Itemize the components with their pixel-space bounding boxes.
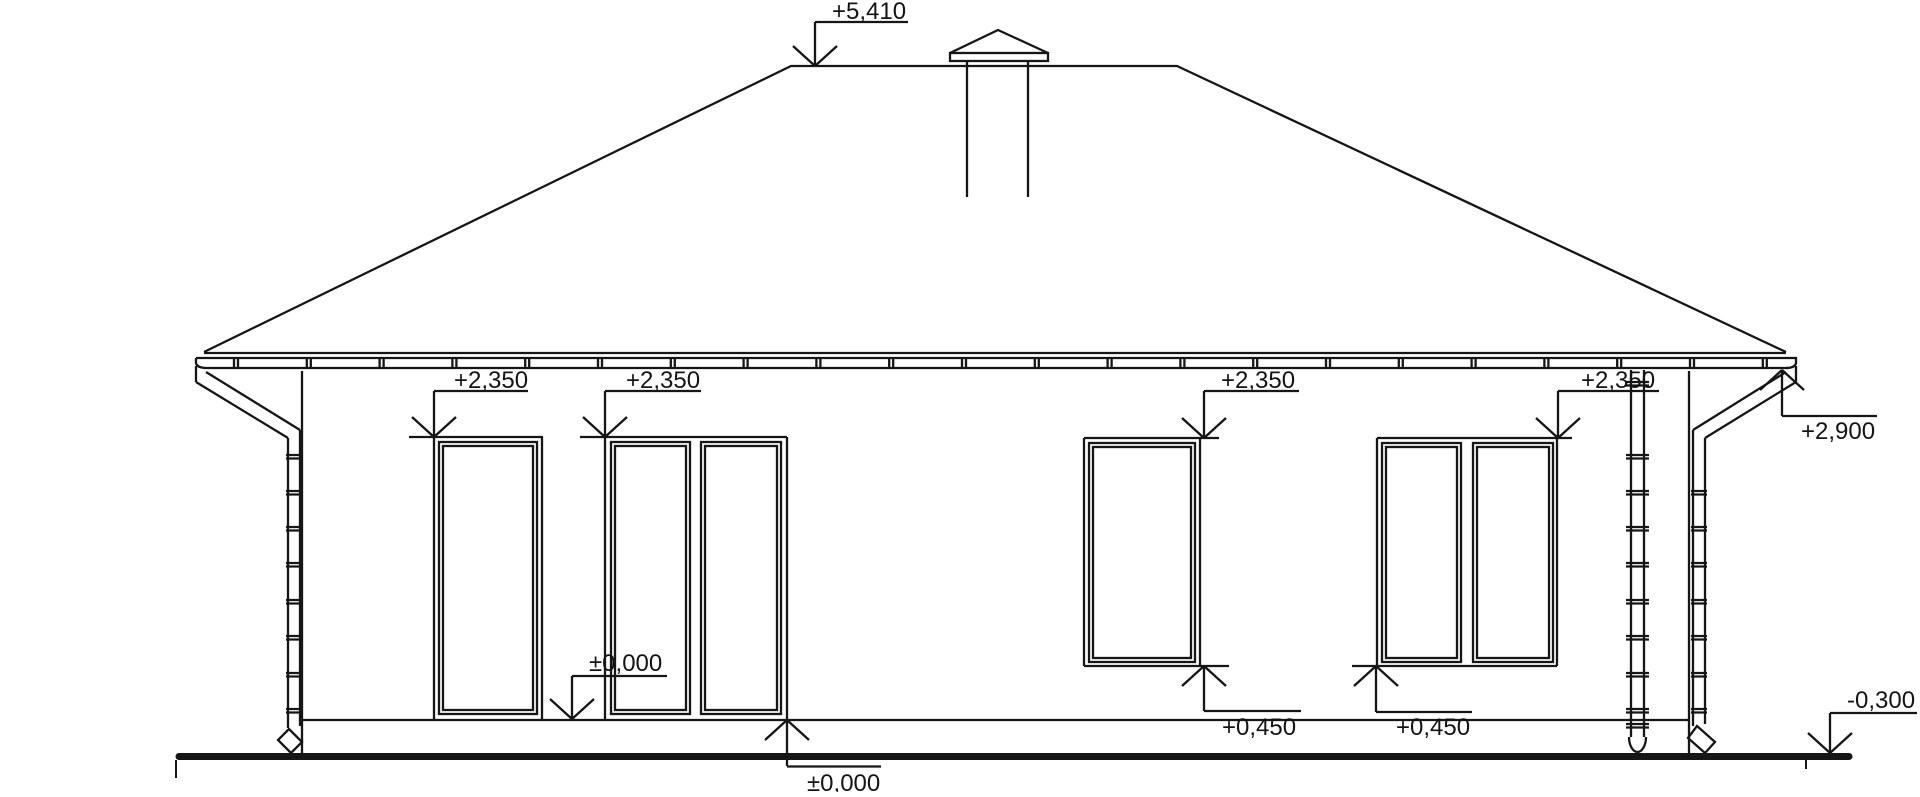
svg-text:-0,300: -0,300 [1847,687,1915,714]
svg-text:+2,900: +2,900 [1801,418,1875,445]
svg-text:±0,000: ±0,000 [807,770,880,792]
svg-text:+2,350: +2,350 [454,367,528,394]
svg-text:+5,410: +5,410 [832,0,906,25]
svg-text:+0,450: +0,450 [1396,714,1470,741]
svg-text:+2,350: +2,350 [1581,367,1655,394]
svg-text:+2,350: +2,350 [626,367,700,394]
svg-text:+0,450: +0,450 [1222,714,1296,741]
svg-text:±0,000: ±0,000 [589,650,662,677]
svg-text:+2,350: +2,350 [1221,367,1295,394]
